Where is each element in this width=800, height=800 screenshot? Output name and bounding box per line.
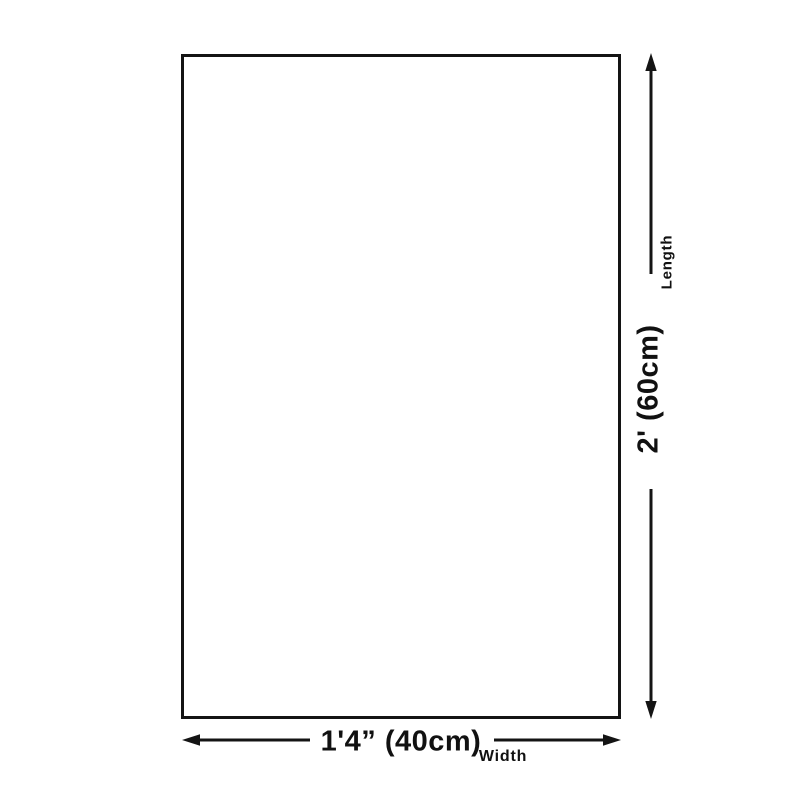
width-axis-label: Width — [479, 749, 527, 765]
width-value-label: 1'4” (40cm) — [321, 728, 482, 757]
dimension-arrows — [0, 0, 800, 800]
arrowhead-down-icon — [645, 701, 656, 719]
length-value-label: 2' (60cm) — [635, 324, 664, 453]
dimension-diagram: Length 2' (60cm) 1'4” (40cm) Width — [0, 0, 800, 800]
arrowhead-right-icon — [603, 734, 621, 745]
length-axis-label: Length — [660, 235, 675, 290]
